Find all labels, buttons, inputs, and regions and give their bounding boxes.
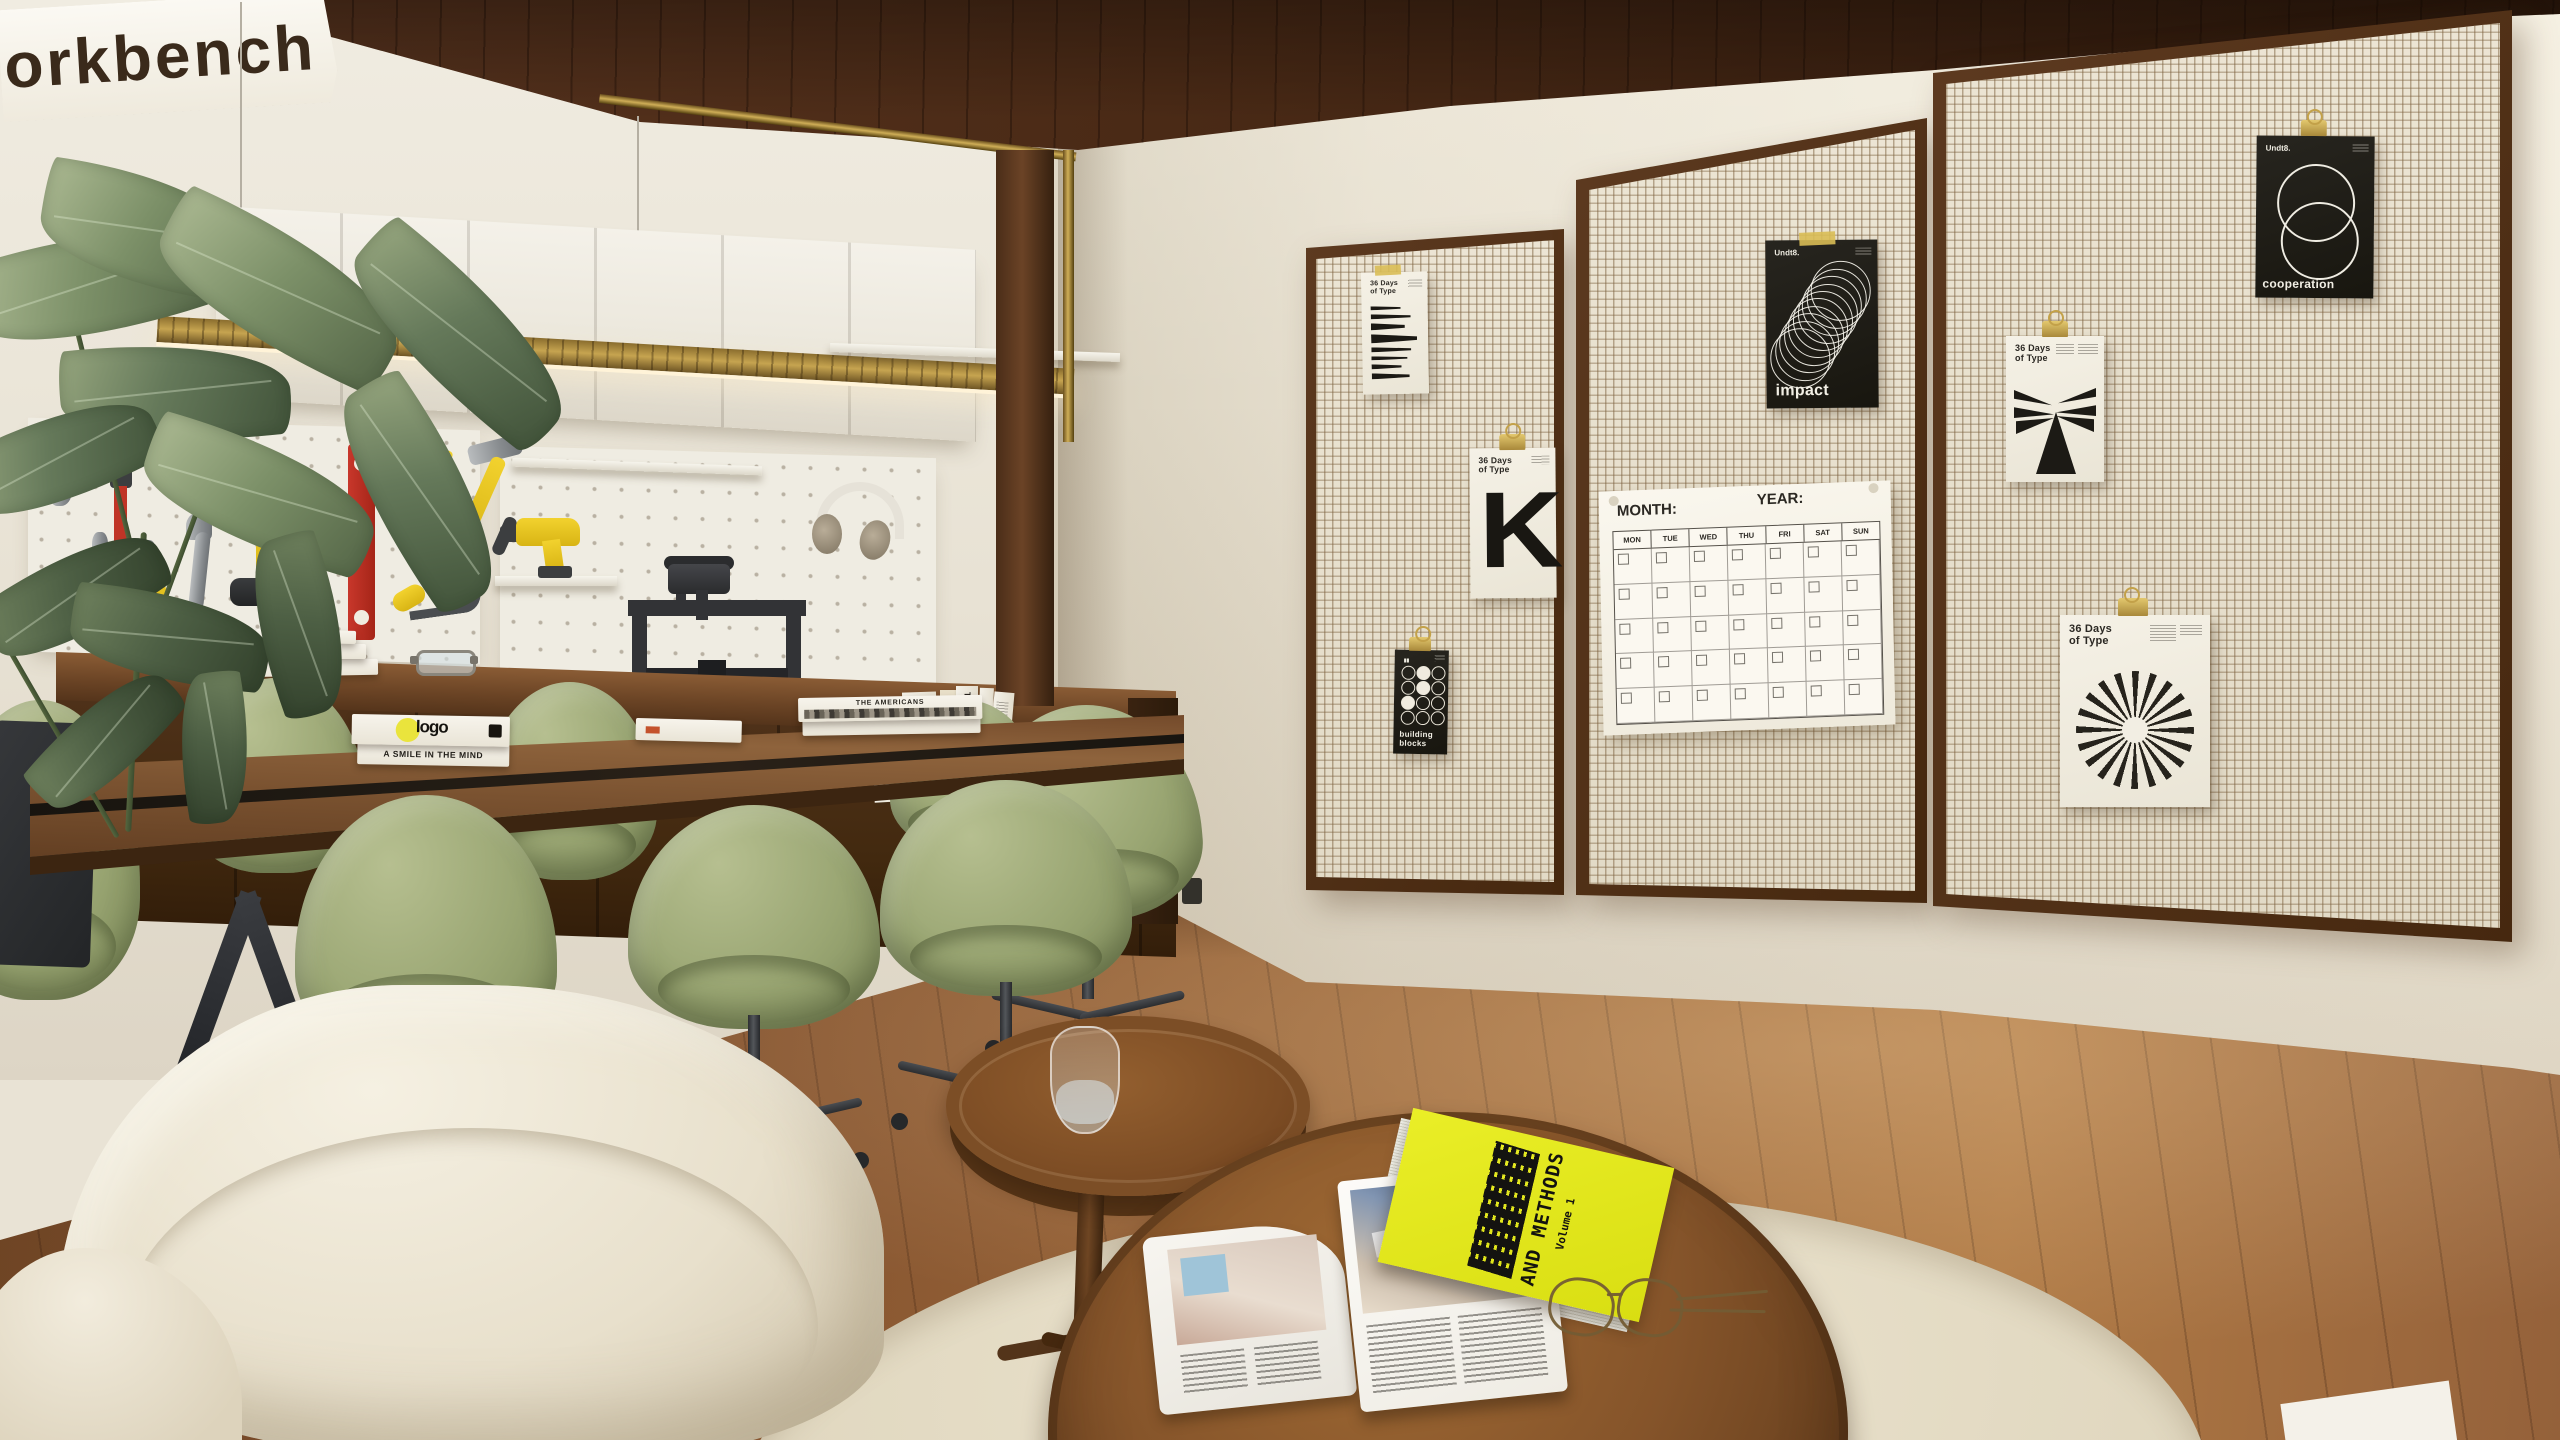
cooperation-poster: Undt8. cooperation xyxy=(2255,135,2374,298)
calendar-cell xyxy=(1768,647,1807,683)
calendar-cell xyxy=(1616,653,1655,689)
building-circle xyxy=(1401,666,1415,680)
magazine-left-page xyxy=(1142,1218,1358,1416)
calendar-cell xyxy=(1617,688,1656,724)
calendar-cell xyxy=(1767,612,1806,648)
calendar-cell xyxy=(1690,546,1729,582)
calendar-cell xyxy=(1805,611,1844,647)
lines-bar xyxy=(1371,356,1407,361)
building-circle xyxy=(1401,696,1415,710)
calendar-table: MONTUEWEDTHUFRISATSUN xyxy=(1612,521,1884,725)
calendar-cell xyxy=(1693,685,1732,721)
studio-interior-scene: orkbench xyxy=(0,0,2560,1440)
headphone-cup xyxy=(812,514,842,554)
cooperation-title: cooperation xyxy=(2262,277,2334,292)
wood-corner-post xyxy=(996,150,1054,706)
magazine-photo xyxy=(1167,1234,1326,1345)
building-circle xyxy=(1416,711,1430,725)
workbench-sign: orkbench xyxy=(0,0,339,122)
lines-bar xyxy=(1371,334,1417,344)
water-glass xyxy=(1050,1026,1120,1134)
building-circle xyxy=(1431,696,1445,710)
calendar-cell xyxy=(1731,683,1770,719)
calendar-cell xyxy=(1655,686,1694,722)
safety-goggles xyxy=(410,648,478,674)
calendar-day-header: SUN xyxy=(1842,522,1879,540)
calendar-cell xyxy=(1614,583,1653,619)
calendar-cell xyxy=(1654,652,1693,688)
calendar-cell xyxy=(1766,543,1805,579)
calendar-day-header: THU xyxy=(1728,526,1766,544)
calendar-cell xyxy=(1842,540,1881,576)
triangles-graphic xyxy=(2014,384,2096,474)
building-blocks-title: building blocks xyxy=(1399,729,1433,749)
building-circle xyxy=(1401,711,1415,725)
building-blocks-poster: ▮▮ building blocks xyxy=(1393,650,1449,755)
americans-book-title: THE AMERICANS xyxy=(808,698,972,708)
calendar-cell xyxy=(1845,679,1884,715)
calendar-cell xyxy=(1653,617,1692,653)
lines-poster: 36 Days of Type xyxy=(1361,271,1429,394)
sunburst-poster-header: 36 Days of Type xyxy=(2069,623,2112,647)
calendar-day-header: MON xyxy=(1613,531,1651,549)
calendar-cell xyxy=(1691,615,1730,651)
calendar-cell xyxy=(1769,682,1808,718)
triangles-poster-header: 36 Days of Type xyxy=(2015,344,2050,364)
lines-bar xyxy=(1371,306,1401,311)
calendar-cell xyxy=(1615,618,1654,654)
calendar-cell xyxy=(1807,680,1846,716)
lines-bar xyxy=(1371,347,1411,353)
workbench-sign-label: orkbench xyxy=(0,10,318,103)
building-circle xyxy=(1416,681,1430,695)
calendar-cell xyxy=(1843,609,1882,645)
calendar-cell xyxy=(1652,582,1691,618)
calendar-cell xyxy=(1652,547,1691,583)
building-circle xyxy=(1431,681,1445,695)
calendar-cell xyxy=(1690,580,1729,616)
calendar-grid xyxy=(1614,540,1883,724)
calendar-cell xyxy=(1804,541,1843,577)
lines-bar xyxy=(1372,364,1402,370)
building-circles xyxy=(1401,666,1448,731)
triangles-poster: 36 Days of Type xyxy=(2006,336,2104,482)
calendar-month-label: MONTH: xyxy=(1617,501,1677,520)
sunburst-poster: 36 Days of Type xyxy=(2060,615,2210,807)
calendar-cell xyxy=(1730,649,1769,685)
smile-book-title: A SMILE IN THE MIND xyxy=(383,749,483,761)
building-circle xyxy=(1416,696,1430,710)
calendar-cell xyxy=(1614,549,1653,585)
k-poster-letter: K xyxy=(1474,467,1568,593)
k-poster: 36 Days of Type K xyxy=(1469,448,1556,599)
lines-poster-header: 36 Days of Type xyxy=(1370,280,1398,296)
calendar-cell xyxy=(1728,544,1767,580)
glasses-lens xyxy=(1544,1273,1618,1341)
calendar-cell xyxy=(1806,646,1845,682)
calendar-cell xyxy=(1804,576,1843,612)
calendar-cell xyxy=(1844,644,1883,680)
calendar-day-header: WED xyxy=(1690,528,1728,546)
calendar-cell xyxy=(1729,614,1768,650)
building-circle xyxy=(1401,681,1415,695)
impact-poster: Undt8. impact xyxy=(1765,240,1878,409)
lines-bars xyxy=(1371,306,1422,387)
logo-book-title: logo xyxy=(392,717,472,738)
power-drill xyxy=(500,504,600,578)
lines-bar xyxy=(1372,373,1410,380)
brass-pipe-vertical xyxy=(1063,150,1074,442)
sunburst-graphic xyxy=(2076,671,2194,789)
calendar-day-header: FRI xyxy=(1766,525,1804,543)
lines-bar xyxy=(1371,323,1405,331)
calendar-cell xyxy=(1692,650,1731,686)
cooperation-brand: Undt8. xyxy=(2266,144,2291,153)
wall-calendar: MONTH: YEAR: MONTUEWEDTHUFRISATSUN xyxy=(1599,480,1896,735)
building-circle xyxy=(1431,711,1445,725)
calendar-cell xyxy=(1766,578,1805,614)
calendar-day-header: SAT xyxy=(1804,523,1842,541)
lines-bar xyxy=(1371,314,1411,320)
calendar-cell xyxy=(1728,579,1767,615)
impact-title: impact xyxy=(1776,382,1830,400)
building-circle xyxy=(1431,666,1445,680)
building-circle xyxy=(1416,666,1430,680)
calendar-year-label: YEAR: xyxy=(1757,490,1804,509)
calendar-day-header: TUE xyxy=(1651,529,1689,547)
logo-book: logo xyxy=(351,714,509,747)
calendar-cell xyxy=(1842,575,1881,611)
cooperation-circle xyxy=(2280,202,2359,281)
